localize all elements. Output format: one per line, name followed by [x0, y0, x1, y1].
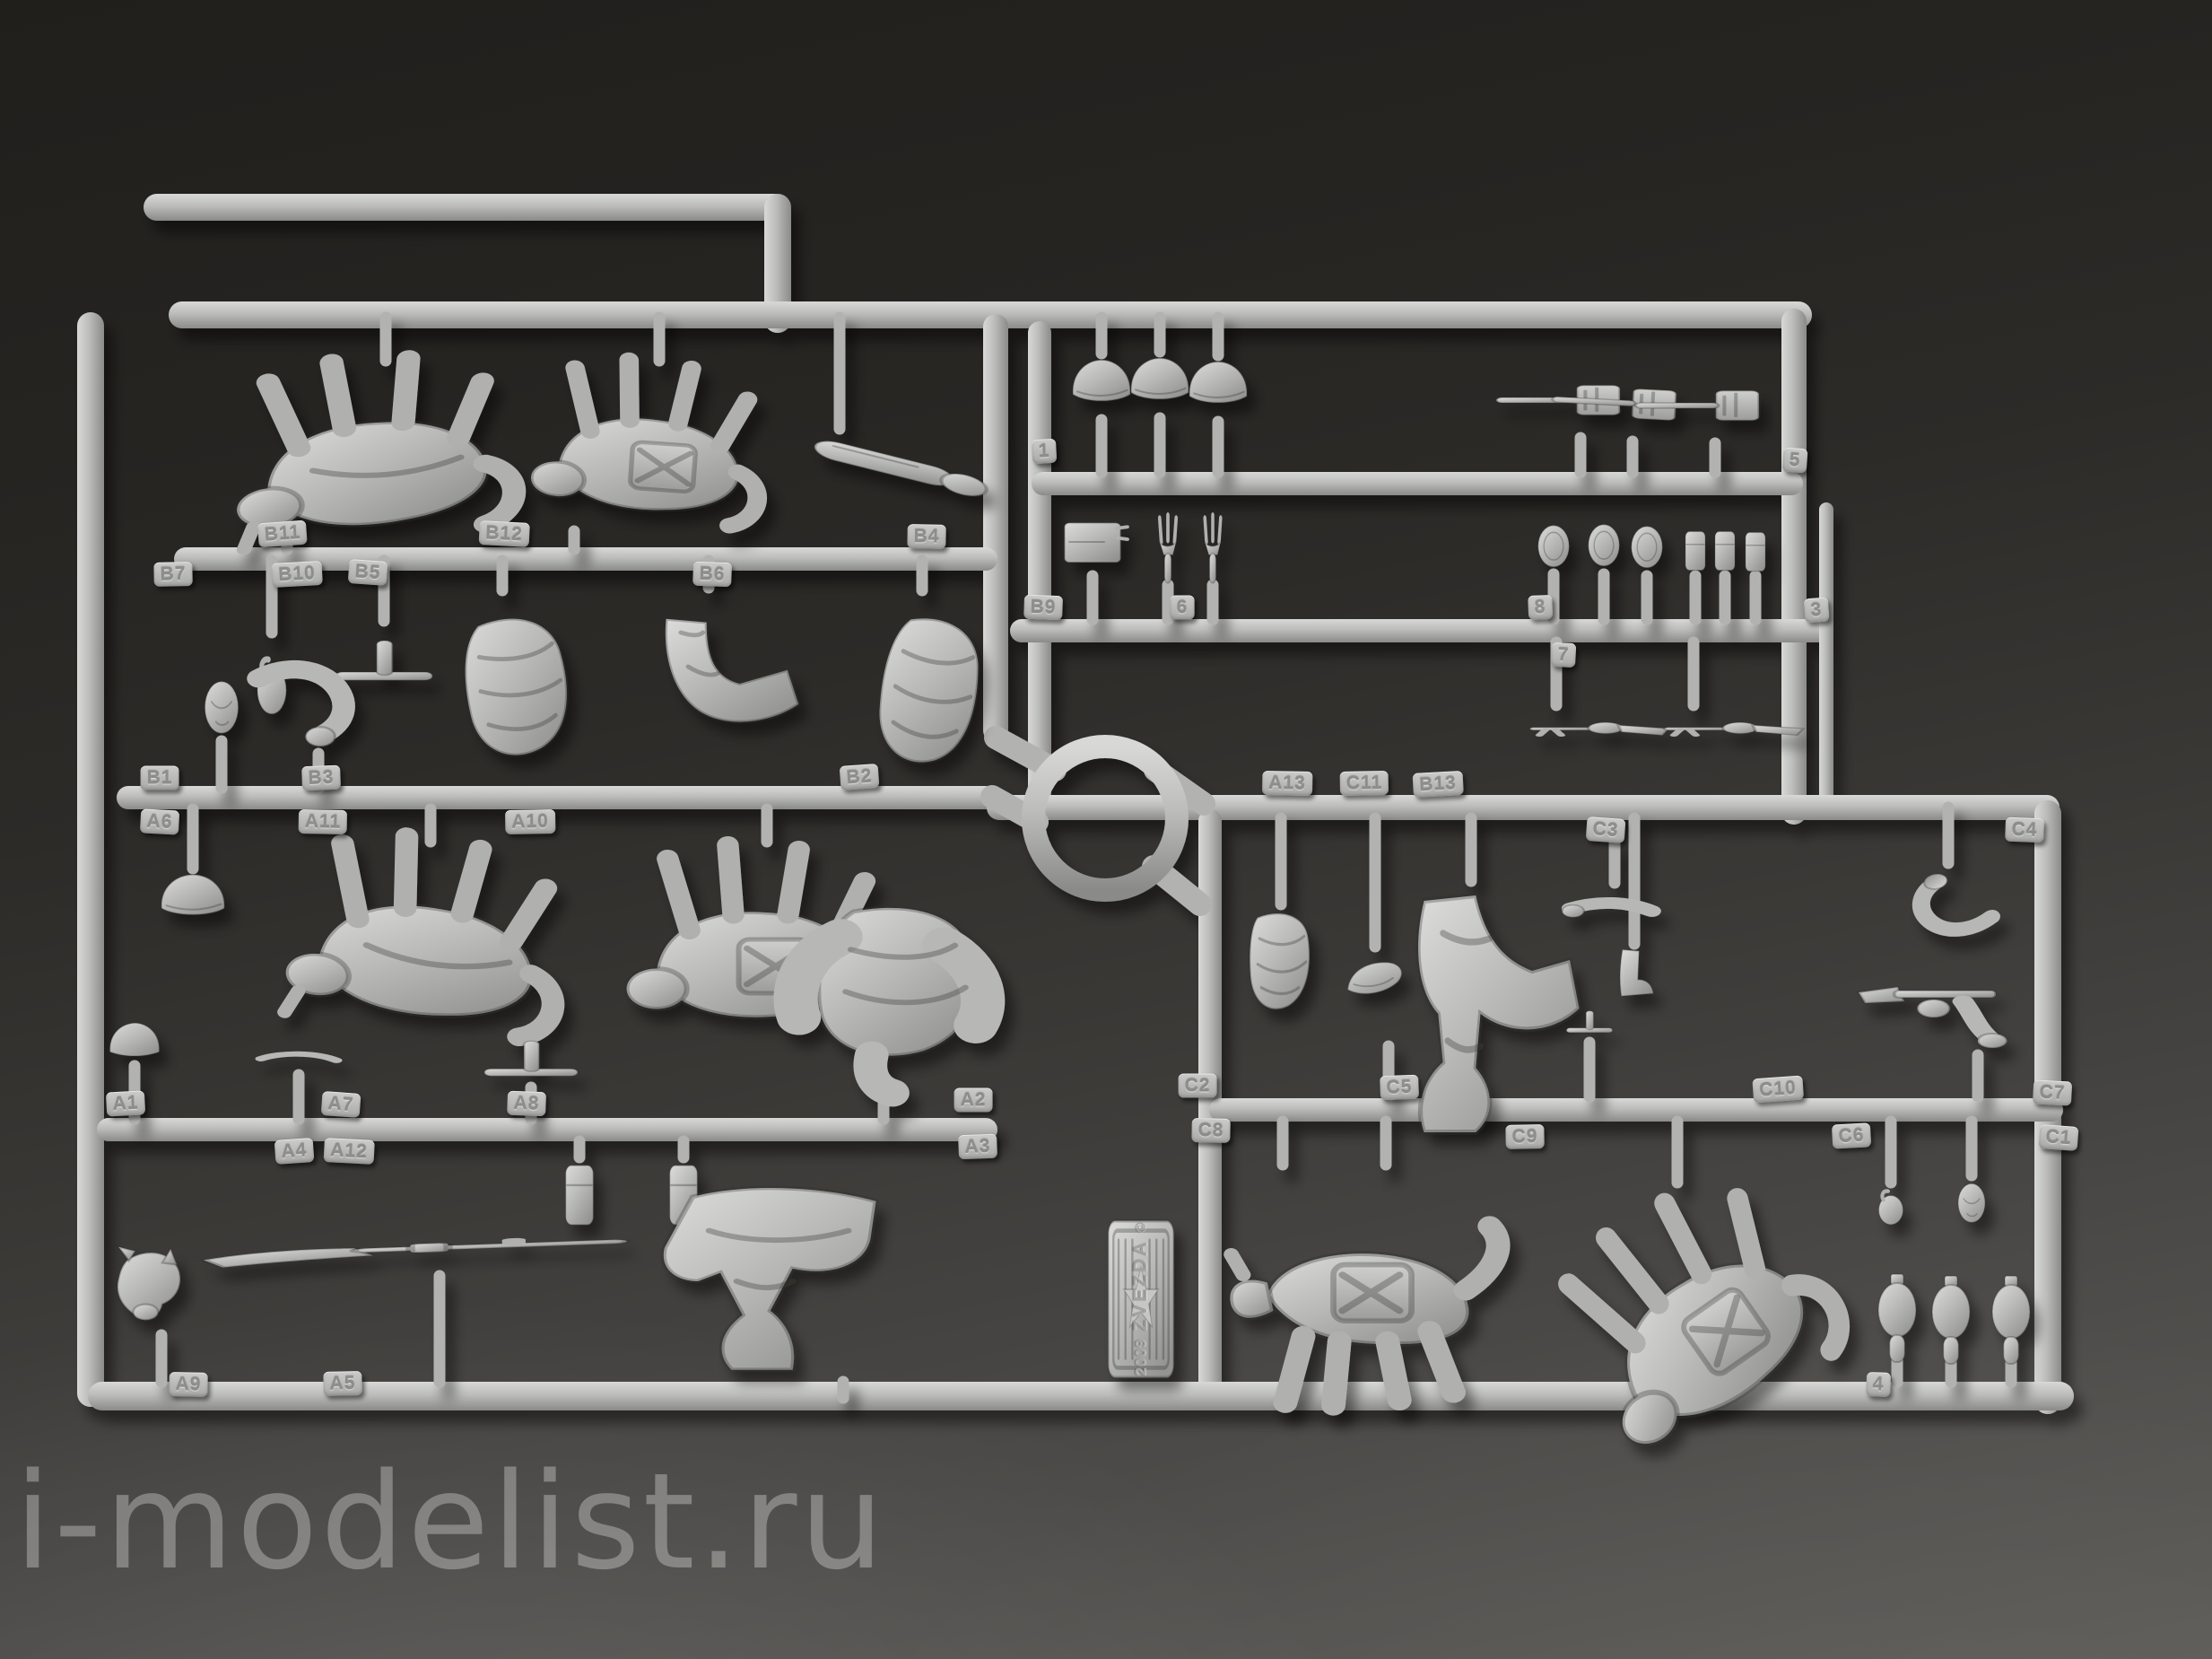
part-canteen [1992, 1276, 2030, 1364]
sprue-runner [1028, 321, 1051, 816]
part-helmet [1189, 362, 1247, 403]
part-cap [1347, 963, 1401, 994]
part-mg [1530, 722, 1669, 735]
part-disc [1589, 525, 1620, 566]
part-canteen [1878, 1274, 1916, 1362]
part-disc [1538, 526, 1570, 567]
part-dogup [222, 345, 517, 550]
part-doguppack [1528, 1153, 1854, 1474]
sprue-runner [1819, 502, 1833, 815]
part-disc [1632, 527, 1663, 568]
part-tbar [484, 1041, 578, 1076]
sprue-runner [983, 314, 1008, 743]
part-boot [1620, 949, 1653, 996]
part-pouch [1685, 531, 1705, 570]
part-head [1958, 1183, 1985, 1222]
part-doguppack [528, 354, 766, 528]
part-armB [1916, 866, 1992, 936]
photo-of-model-kit-sprue: B11B12B4B7B10B5B6B1B3B2A6A11A10A1A7A8A2A… [0, 0, 2212, 1659]
sprue-runner [97, 1118, 997, 1141]
part-dogup [282, 825, 569, 1040]
sprue-runner [117, 786, 997, 809]
part-helmet [161, 875, 224, 914]
part-legscrawl [1418, 895, 1579, 1132]
sprue-runner [77, 312, 104, 1407]
part-torsoArms [796, 908, 983, 1093]
part-hand [1878, 1192, 1903, 1225]
sprue-runner [1781, 309, 1807, 825]
part-box [1065, 523, 1128, 563]
part-pouch [1746, 532, 1765, 571]
part-doghead [118, 1247, 180, 1320]
part-head [205, 682, 238, 734]
sprue-runner [1010, 619, 1832, 642]
part-fork [1205, 515, 1221, 582]
sprue-runner [1209, 1098, 2063, 1122]
part-pouch [1715, 531, 1735, 570]
part-dogside [1230, 1227, 1498, 1406]
part-legswalk [664, 1188, 876, 1370]
part-helmet [1073, 360, 1130, 401]
part-tbar [335, 641, 432, 680]
sprue-runner [144, 194, 788, 221]
part-fork [1160, 515, 1176, 582]
part-helmet [1131, 358, 1189, 399]
part-armS [812, 437, 988, 500]
part-domeS [110, 1023, 160, 1056]
part-canteen [1932, 1276, 1970, 1364]
sprue-runner [987, 795, 2060, 820]
part-horn [261, 1054, 336, 1061]
part-smgarm [1859, 987, 2007, 1048]
sprue [0, 0, 2212, 1659]
sprue-runner [1032, 472, 1803, 495]
part-pouch [566, 1166, 594, 1225]
part-plate [1109, 1221, 1174, 1378]
part-torso [457, 612, 576, 761]
part-legsbent [666, 619, 798, 722]
sprue-runner [174, 547, 997, 571]
part-torso [872, 614, 986, 769]
part-rifle [203, 1236, 627, 1268]
part-backpack [1250, 913, 1309, 1009]
sprue-runner [88, 1382, 2074, 1410]
